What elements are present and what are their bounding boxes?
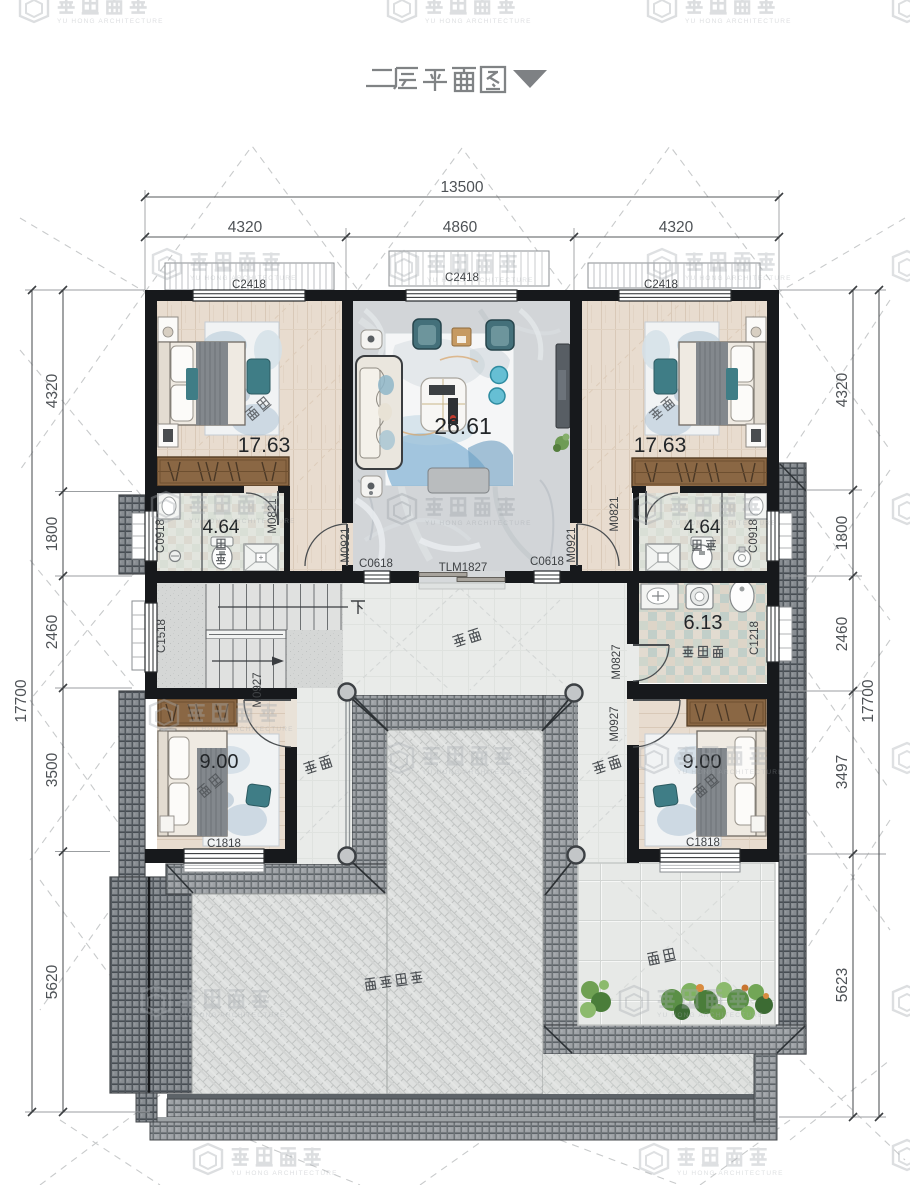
svg-text:2460: 2460 — [834, 616, 851, 651]
svg-text:M0827: M0827 — [611, 644, 623, 679]
svg-text:17.63: 17.63 — [238, 434, 291, 457]
svg-text:1800: 1800 — [834, 515, 851, 550]
svg-text:4320: 4320 — [44, 373, 61, 408]
svg-text:M0921: M0921 — [340, 527, 352, 562]
svg-text:M0921: M0921 — [566, 527, 578, 562]
svg-text:17700: 17700 — [860, 679, 877, 722]
svg-text:C0618: C0618 — [359, 558, 393, 570]
svg-text:6.13: 6.13 — [684, 612, 723, 634]
svg-text:M0821: M0821 — [267, 498, 279, 533]
svg-text:17.63: 17.63 — [634, 434, 687, 457]
svg-text:C1818: C1818 — [686, 837, 720, 849]
svg-text:M0927: M0927 — [609, 706, 621, 741]
svg-text:C2418: C2418 — [644, 279, 678, 291]
svg-text:M0927: M0927 — [252, 672, 264, 707]
svg-text:1800: 1800 — [44, 516, 61, 551]
svg-text:4320: 4320 — [228, 219, 263, 236]
svg-text:3497: 3497 — [834, 755, 851, 789]
svg-text:4320: 4320 — [659, 219, 694, 236]
svg-text:17700: 17700 — [13, 679, 30, 722]
svg-text:9.00: 9.00 — [200, 751, 239, 773]
svg-text:2460: 2460 — [44, 614, 61, 649]
svg-text:5620: 5620 — [44, 964, 61, 999]
svg-text:C0918: C0918 — [155, 519, 167, 553]
svg-text:M0821: M0821 — [609, 496, 621, 531]
svg-text:3500: 3500 — [44, 752, 61, 787]
svg-text:C0618: C0618 — [530, 556, 564, 568]
svg-text:4860: 4860 — [443, 219, 478, 236]
svg-text:C1218: C1218 — [749, 621, 761, 655]
svg-text:4320: 4320 — [834, 372, 851, 407]
svg-text:C1518: C1518 — [156, 619, 168, 653]
svg-text:5623: 5623 — [834, 968, 851, 1002]
svg-text:C1818: C1818 — [207, 838, 241, 850]
svg-text:26.61: 26.61 — [434, 413, 492, 439]
svg-text:13500: 13500 — [440, 179, 483, 196]
svg-text:TLM1827: TLM1827 — [439, 562, 488, 574]
